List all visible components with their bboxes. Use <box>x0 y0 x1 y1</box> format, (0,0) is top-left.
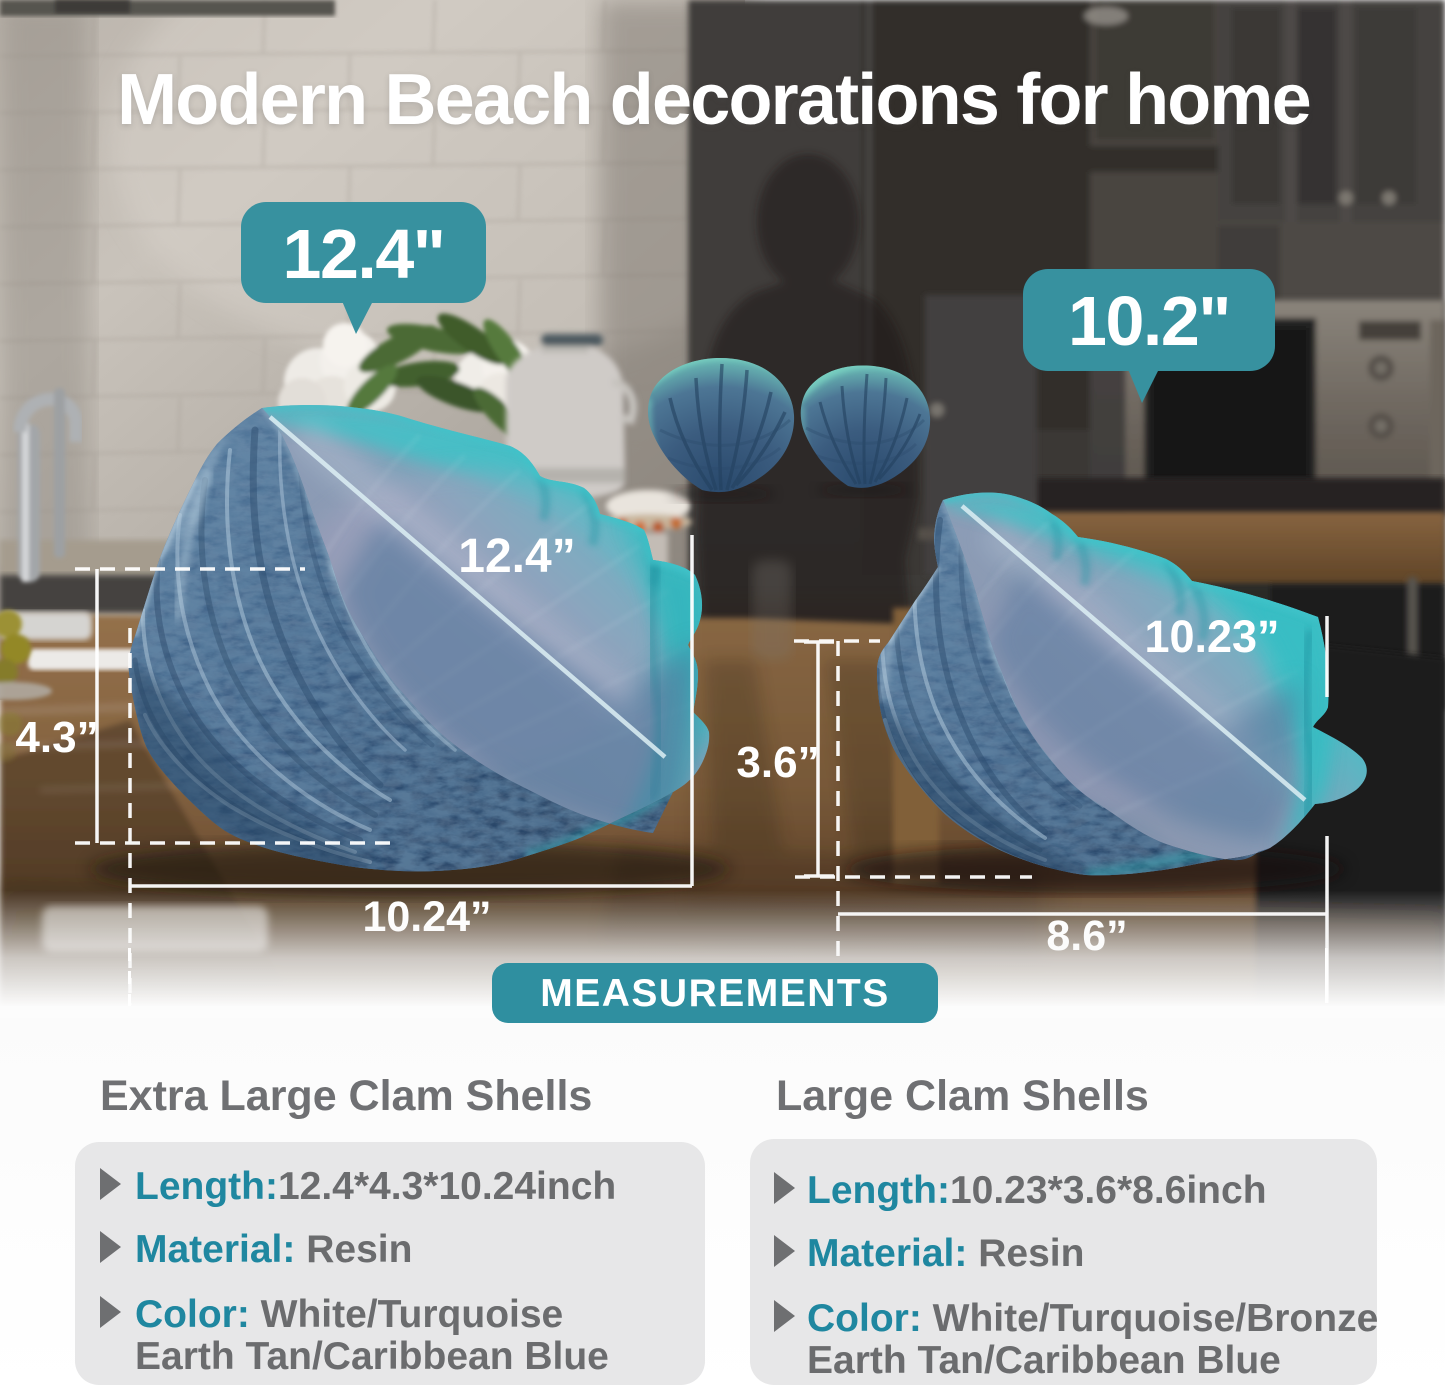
svg-text:4.3”: 4.3” <box>15 713 98 762</box>
svg-text:10.23”: 10.23” <box>1144 611 1279 662</box>
svg-text:12.4”: 12.4” <box>458 530 575 583</box>
svg-text:3.6”: 3.6” <box>736 738 819 787</box>
